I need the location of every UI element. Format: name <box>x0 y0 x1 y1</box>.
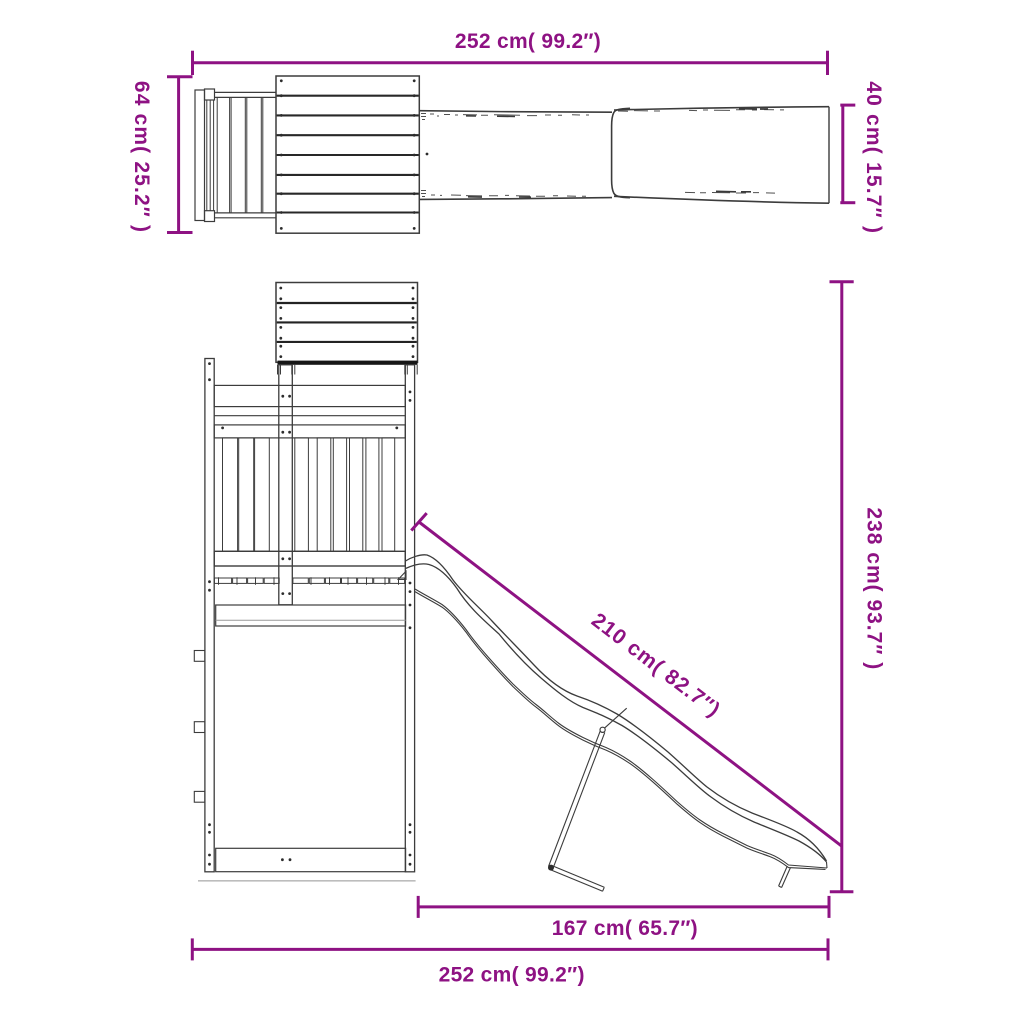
svg-text:40 cm( 15.7″ ): 40 cm( 15.7″ ) <box>862 81 885 234</box>
svg-text:252 cm( 99.2″): 252 cm( 99.2″) <box>455 30 601 53</box>
svg-text:64 cm( 25.2″ ): 64 cm( 25.2″ ) <box>130 81 153 233</box>
svg-text:167 cm( 65.7″): 167 cm( 65.7″) <box>552 917 698 940</box>
svg-text:252 cm( 99.2″): 252 cm( 99.2″) <box>439 964 585 987</box>
svg-text:238 cm( 93.7″ ): 238 cm( 93.7″ ) <box>863 507 886 670</box>
